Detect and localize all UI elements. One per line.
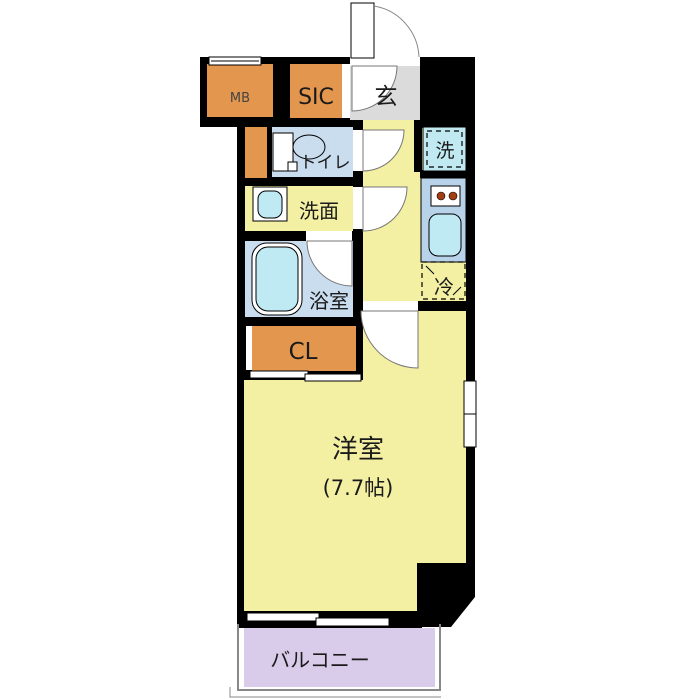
wall-washer-left bbox=[414, 128, 422, 172]
balcony-sliding-window-left bbox=[247, 613, 319, 621]
washbasin bbox=[258, 191, 282, 218]
toilet-door-opening bbox=[353, 130, 363, 171]
bathtub bbox=[256, 247, 298, 311]
fridge-label: 冷 bbox=[434, 275, 454, 299]
mb-label: MB bbox=[230, 91, 250, 106]
closet-slide-door-right bbox=[305, 374, 361, 381]
main-room-size-label: (7.7帖) bbox=[323, 476, 394, 500]
main-room-door-opening bbox=[363, 301, 418, 311]
washer-label: 洗 bbox=[435, 140, 454, 162]
washroom-door-opening bbox=[353, 187, 363, 229]
wall-corridor-bottom bbox=[418, 301, 474, 311]
bathroom-label: 浴室 bbox=[309, 289, 349, 313]
entrance-label: 玄 bbox=[375, 84, 398, 110]
sic-door-opening bbox=[342, 64, 350, 118]
wall-bathroom-closet bbox=[237, 316, 365, 326]
stove-burner-left bbox=[437, 192, 445, 200]
closet-label: CL bbox=[289, 339, 318, 365]
closet-slide-door-left bbox=[250, 371, 308, 378]
balcony-label: バルコニー bbox=[270, 648, 370, 672]
sic-label: SIC bbox=[298, 85, 334, 110]
entrance-door-leaf bbox=[351, 3, 374, 58]
floor-plan-page: MB SIC 玄 トイレ 洗面 浴室 CL 洗 冷 洋室 (7.7帖) バルコニ… bbox=[0, 0, 700, 700]
entrance-door-arc bbox=[374, 6, 419, 57]
balcony-sliding-window-right bbox=[316, 618, 389, 626]
toilet-flush bbox=[288, 162, 297, 171]
stove-burner-right bbox=[449, 192, 457, 200]
main-room-label: 洋室 bbox=[332, 435, 384, 465]
toilet-label: トイレ bbox=[300, 153, 351, 173]
kitchen-sink bbox=[429, 214, 461, 256]
bathroom-door-opening bbox=[306, 231, 352, 241]
wall-corner-chamfer bbox=[417, 563, 475, 627]
floor-plan-svg: MB SIC 玄 トイレ 洗面 浴室 CL 洗 冷 洋室 (7.7帖) バルコニ… bbox=[0, 0, 700, 700]
washroom-label: 洗面 bbox=[299, 199, 339, 223]
balcony-railing-step bbox=[230, 687, 441, 697]
pipe-space bbox=[245, 127, 267, 178]
